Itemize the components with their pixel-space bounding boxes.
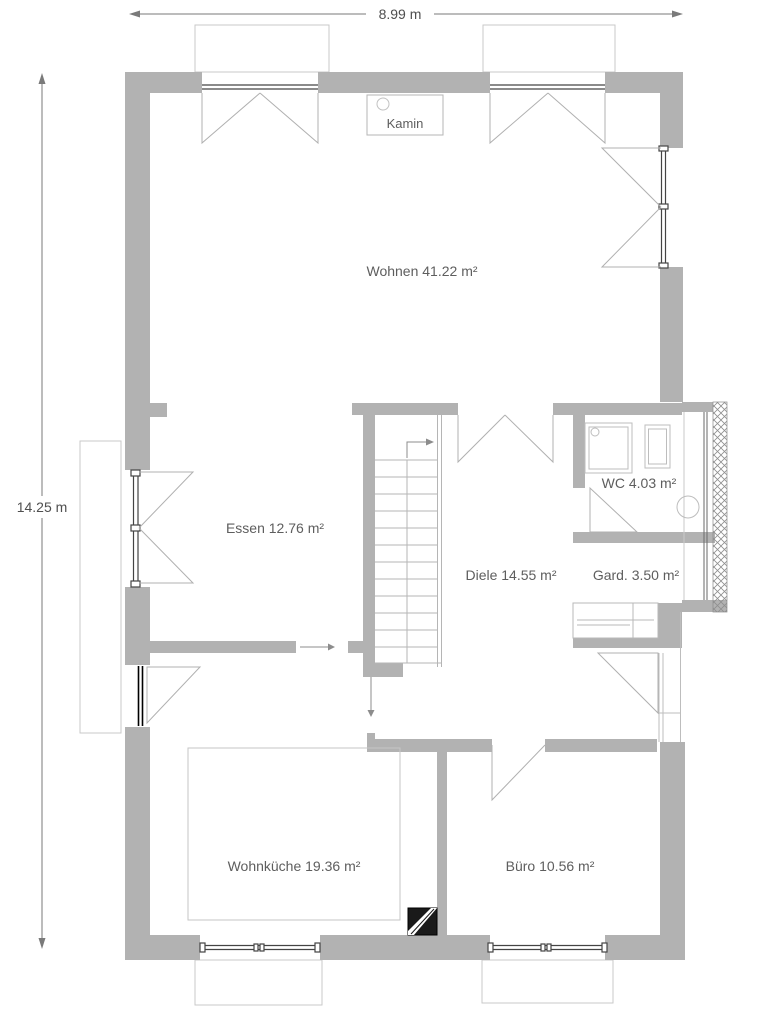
terrace-top-right [483,25,615,72]
sink-icon [645,425,670,468]
wall-stub-left [150,403,167,417]
room-label-wc: WC 4.03 m² [602,475,677,491]
passage-arrow-icon [300,644,335,651]
wall-top-middle [318,72,490,93]
swing-window-wohnen [602,148,661,267]
room-label-buero: Büro 10.56 m² [506,858,595,874]
stair-steps [375,460,441,663]
wall-right-corner [660,93,683,148]
wall-stair-left [363,415,375,663]
walls [125,72,727,960]
window-sill-bottom-right [482,960,613,1003]
wall-bay-top [682,402,713,412]
wall-notch [367,733,375,739]
toilet-icon [677,496,699,518]
terrace-left [80,441,121,733]
wall-essen-wohnkueche [150,641,296,653]
chimney-icon [408,908,437,935]
swing-wc-door [590,488,637,532]
wall-diele-wohnkueche [367,739,492,752]
terrace-top-left [195,25,329,72]
window-wohnkueche-bottom [200,943,320,952]
wall-left-upper [125,72,150,470]
room-label-garderobe: Gard. 3.50 m² [593,567,680,583]
window-essen [131,470,140,587]
wall-right-lower [660,742,685,960]
wall-left-lower [125,727,150,960]
wall-right-upper [660,267,683,402]
floor-plan-drawing: 8.99 m 14.25 m Kamin Wohnen 41.22 m² Ess… [0,0,768,1024]
wall-stair-cap [363,663,403,677]
wall-diele-buero [545,739,657,752]
floor-plan-page: 8.99 m 14.25 m Kamin Wohnen 41.22 m² Ess… [0,0,768,1024]
room-label-essen: Essen 12.76 m² [226,520,324,536]
swing-gard-door [598,653,658,713]
terrace-door-top-left-glyph [202,85,318,89]
swing-wohnen-diele [458,415,553,462]
room-label-wohnkueche: Wohnküche 19.36 m² [228,858,361,874]
wall-wohnkueche-buero [437,752,447,935]
swing-buero-door [492,745,545,800]
stair-up-arrow-icon [407,439,434,459]
wall-wohnen-wc [553,403,682,415]
terrace-door-top-right-glyph [490,85,605,89]
bay-hatched-wall [713,402,727,612]
window-sill-bottom-left [195,960,322,1005]
swing-entry-left [147,667,200,723]
wall-gard-right [658,603,682,648]
shower-icon [585,423,632,473]
swing-terrace-right [490,93,605,143]
swing-window-essen [139,472,193,583]
room-label-wohnen: Wohnen 41.22 m² [366,263,477,279]
dimension-width-label: 8.99 m [379,6,422,22]
kamin-label: Kamin [387,116,424,131]
wall-closet-bar [573,638,658,648]
window-buero-bottom [488,943,607,952]
kitchen-counter [188,748,400,920]
swing-terrace-left [202,93,318,143]
wardrobe-closet [573,603,658,638]
room-label-diele: Diele 14.55 m² [465,567,556,583]
entry-door-left-glyph [139,666,143,726]
stair-down-arrow-icon [368,677,375,717]
wall-top-right [605,72,683,93]
wall-wohnen-diele-left [352,403,458,415]
wall-bottom-left [125,935,200,960]
wall-wc-left [573,415,585,488]
wall-left-middle [125,587,150,665]
wall-bottom-middle [320,935,490,960]
dimension-height-label: 14.25 m [17,499,68,515]
wall-wc-bottom [573,532,715,543]
wall-essen-stub [348,641,375,653]
bay-window [684,402,727,612]
